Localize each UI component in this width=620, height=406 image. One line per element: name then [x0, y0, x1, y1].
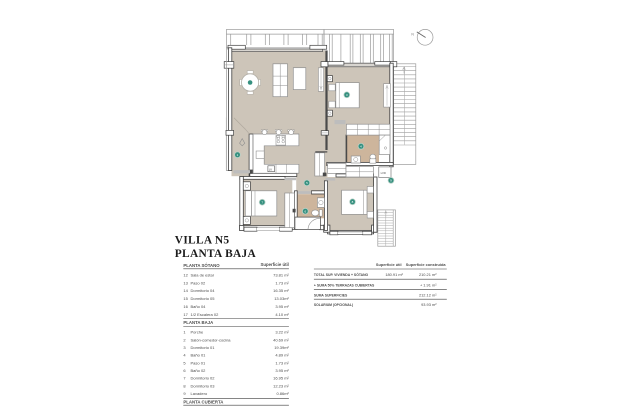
- svg-text:Paso 02: Paso 02: [191, 280, 206, 285]
- svg-text:4.10 m²: 4.10 m²: [275, 312, 289, 317]
- svg-text:212.12 m²: 212.12 m²: [419, 292, 437, 297]
- svg-text:Sala de estar: Sala de estar: [191, 272, 215, 277]
- svg-text:180.91 m²: 180.91 m²: [385, 272, 403, 277]
- svg-text:+ SUMA 50% TERRAZAS CUBIERTAS: + SUMA 50% TERRAZAS CUBIERTAS: [314, 284, 375, 288]
- svg-text:14: 14: [183, 288, 188, 293]
- svg-text:Lavadero: Lavadero: [191, 391, 208, 396]
- svg-text:Dormitorio 05: Dormitorio 05: [191, 296, 216, 301]
- svg-text:1.73 m²: 1.73 m²: [275, 360, 289, 365]
- svg-text:12.23 m²: 12.23 m²: [273, 383, 289, 388]
- svg-text:4.89 m²: 4.89 m²: [275, 353, 289, 358]
- svg-text:Dormitorio 02: Dormitorio 02: [191, 376, 216, 381]
- svg-text:3.95 m²: 3.95 m²: [275, 368, 289, 373]
- svg-text:93.93 m²: 93.93 m²: [421, 302, 437, 307]
- svg-text:PLANTA BAJA: PLANTA BAJA: [183, 320, 213, 325]
- svg-text:3.95 m²: 3.95 m²: [275, 304, 289, 309]
- svg-text:Salón-comedor-cocina: Salón-comedor-cocina: [191, 337, 232, 342]
- svg-text:Baño 01: Baño 01: [191, 353, 207, 358]
- svg-text:TOTAL SUP. VIVIENDA + SÓTANO: TOTAL SUP. VIVIENDA + SÓTANO: [314, 272, 369, 277]
- svg-text:PLANTA CUBIERTA: PLANTA CUBIERTA: [183, 399, 223, 404]
- svg-text:210.21 m²: 210.21 m²: [419, 272, 437, 277]
- svg-text:16.95 m²: 16.95 m²: [273, 376, 289, 381]
- svg-text:12: 12: [183, 272, 188, 277]
- svg-text:Superficie útil: Superficie útil: [376, 262, 402, 267]
- svg-text:LV: LV: [269, 167, 272, 171]
- svg-text:16.35 m²: 16.35 m²: [273, 288, 289, 293]
- svg-text:PLANTA BAJA: PLANTA BAJA: [175, 248, 257, 260]
- svg-text:Superficie útil: Superficie útil: [260, 262, 288, 267]
- svg-text:SUMA SUPERFICIES: SUMA SUPERFICIES: [314, 293, 348, 297]
- svg-text:+ 1.91 m²: + 1.91 m²: [420, 283, 437, 288]
- svg-text:15: 15: [183, 296, 188, 301]
- svg-text:Baño 02: Baño 02: [191, 368, 207, 373]
- svg-text:Dormitorio 04: Dormitorio 04: [191, 288, 216, 293]
- svg-text:40.69 m²: 40.69 m²: [273, 337, 289, 342]
- svg-text:Dormitorio 03: Dormitorio 03: [191, 383, 216, 388]
- svg-text:Porche: Porche: [191, 330, 204, 335]
- svg-text:LVD: LVD: [381, 171, 386, 175]
- svg-text:3.22 m²: 3.22 m²: [275, 330, 289, 335]
- svg-text:13.03m²: 13.03m²: [274, 296, 289, 301]
- svg-text:0.86m²: 0.86m²: [276, 391, 289, 396]
- svg-text:19.39m²: 19.39m²: [274, 345, 289, 350]
- svg-text:Superficie construida: Superficie construida: [406, 262, 447, 267]
- svg-text:16: 16: [183, 304, 188, 309]
- svg-text:Paso 01: Paso 01: [191, 360, 206, 365]
- svg-text:SOLARIUM (OPCIONAL): SOLARIUM (OPCIONAL): [314, 303, 353, 307]
- svg-text:VILLA N5: VILLA N5: [175, 234, 230, 246]
- svg-text:Baño 04: Baño 04: [191, 304, 207, 309]
- svg-text:Dormitorio 01: Dormitorio 01: [191, 345, 216, 350]
- svg-text:1.73 m²: 1.73 m²: [275, 280, 289, 285]
- svg-text:73.81 m²: 73.81 m²: [273, 272, 289, 277]
- svg-text:PLANTA SÓTANO: PLANTA SÓTANO: [183, 263, 220, 268]
- svg-text:1/2 Escalera 02: 1/2 Escalera 02: [191, 312, 220, 317]
- svg-text:17: 17: [183, 312, 188, 317]
- svg-text:13: 13: [183, 280, 188, 285]
